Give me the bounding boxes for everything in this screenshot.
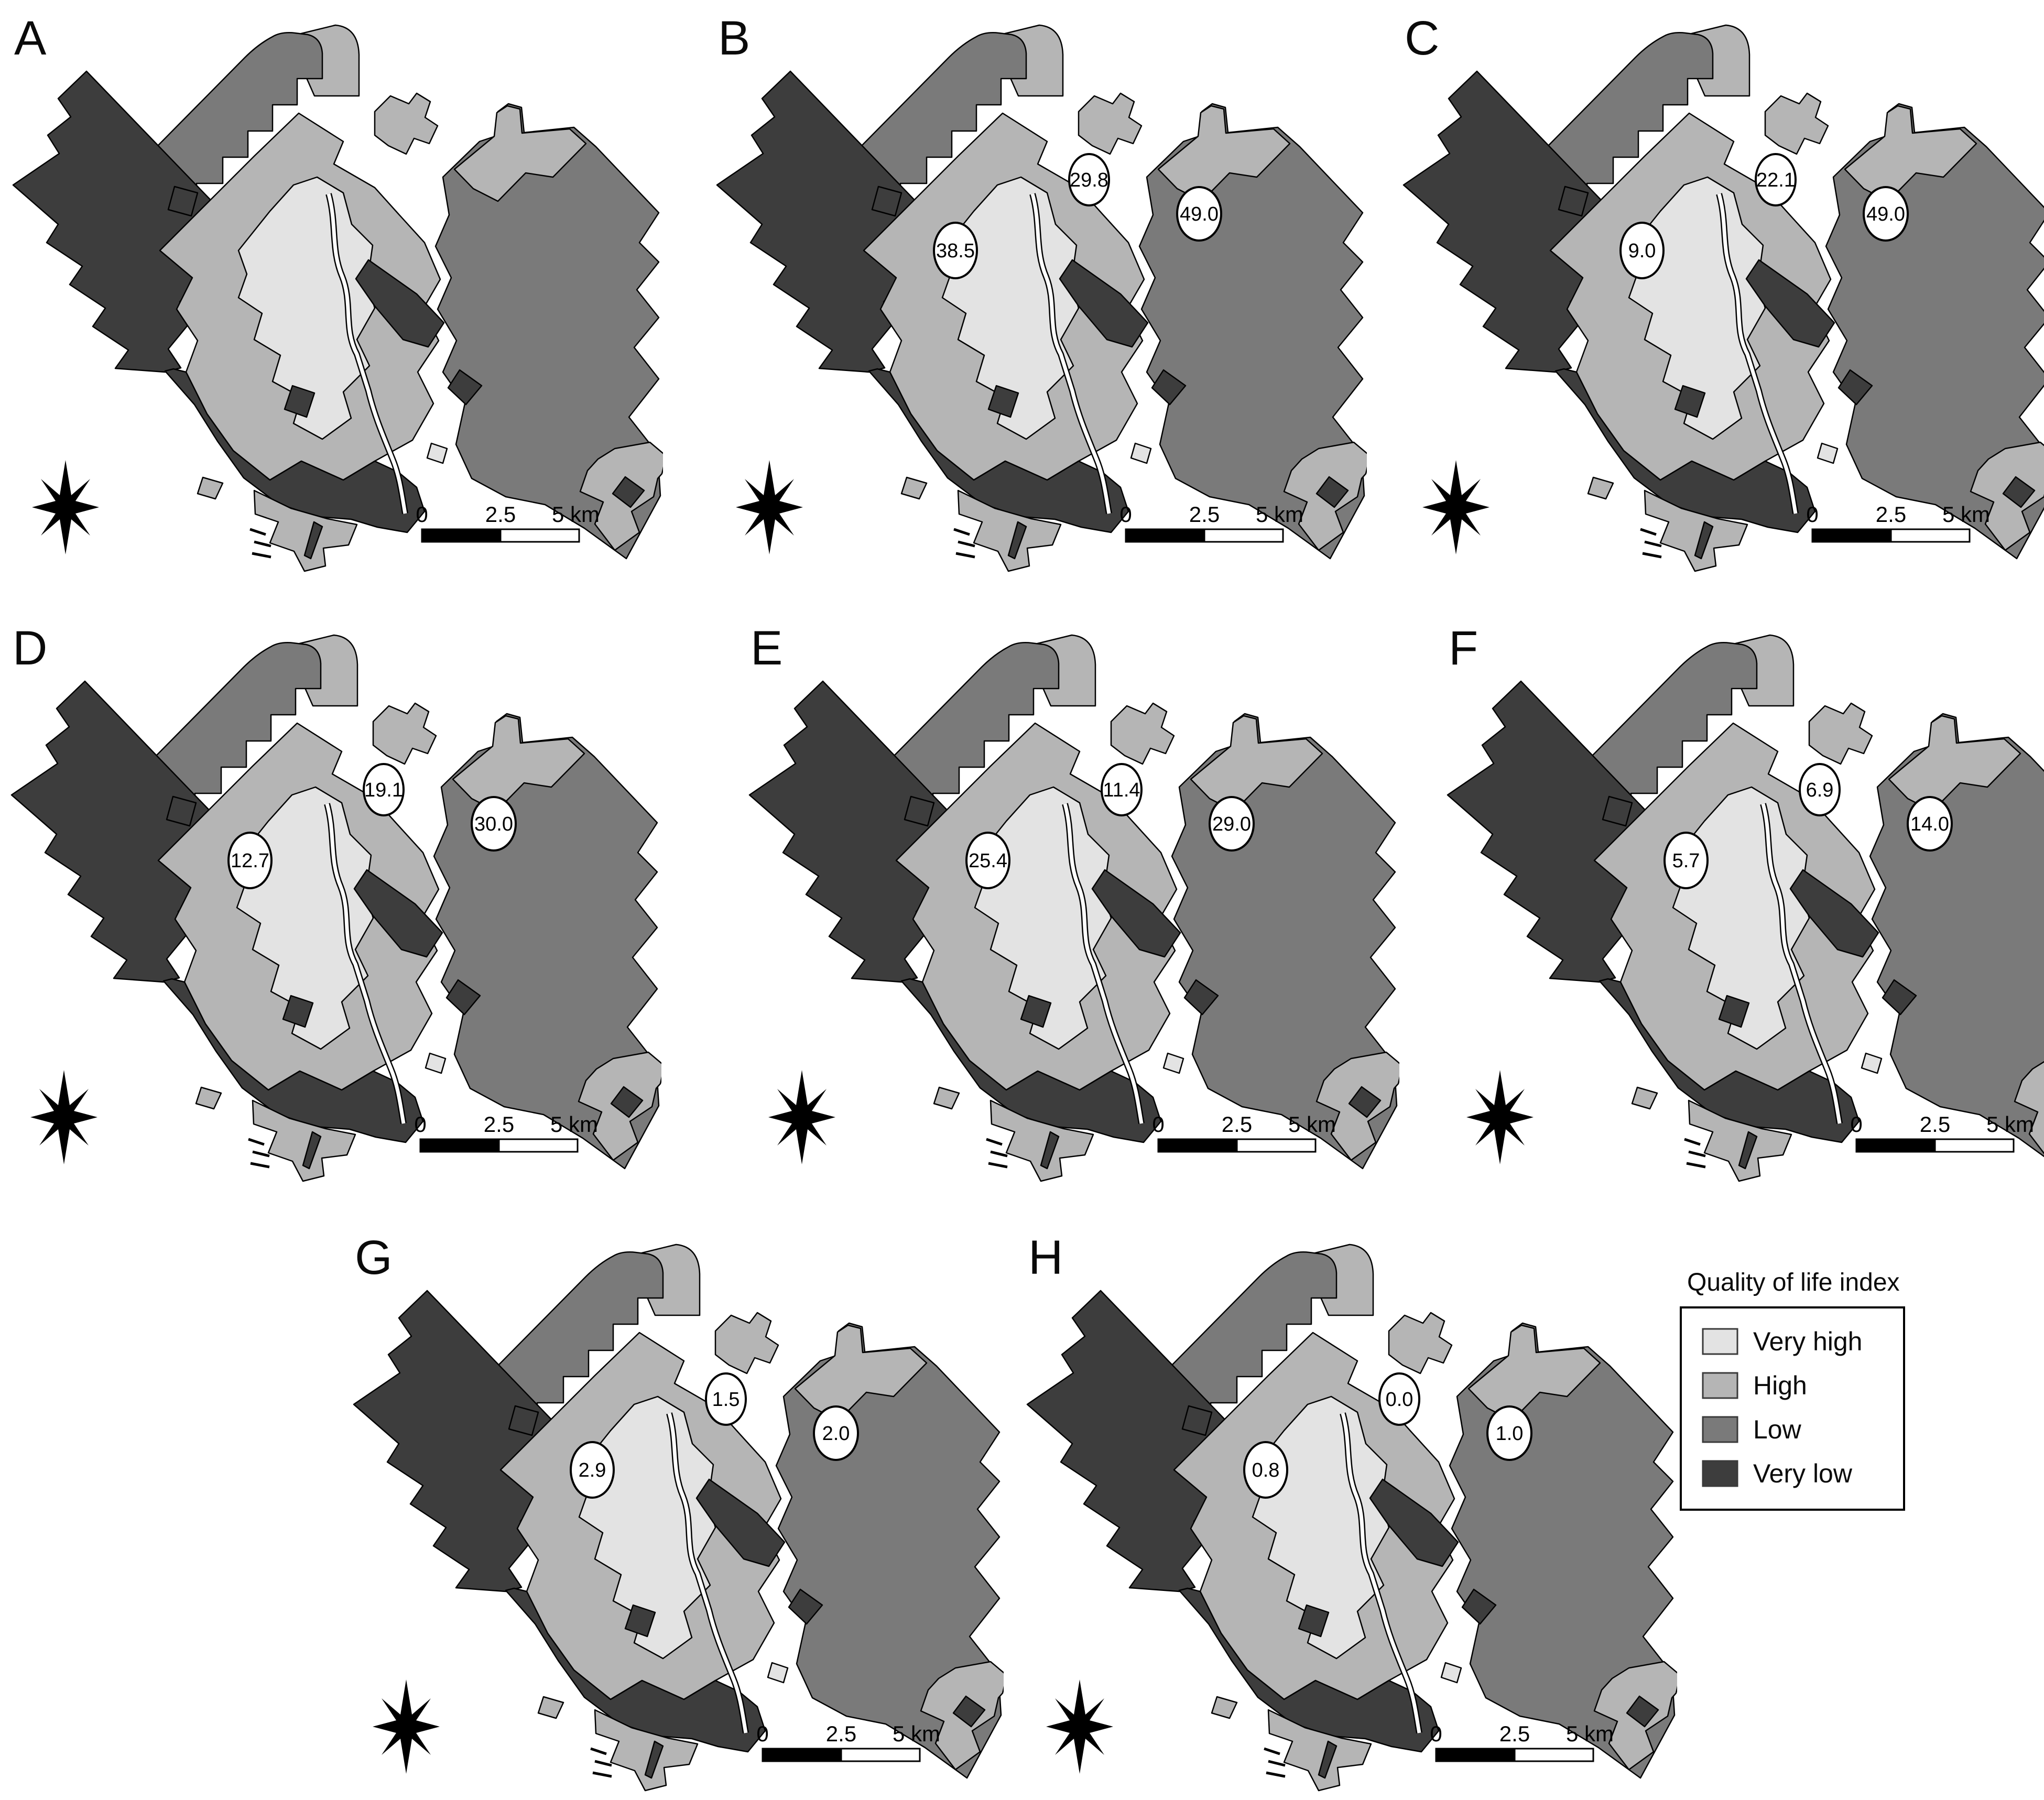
scale-bar: 0 2.5 5 km bbox=[1806, 502, 1990, 542]
scale-label-0: 0 bbox=[414, 1112, 426, 1137]
scale-label-0: 0 bbox=[1430, 1721, 1442, 1746]
value-text: 1.5 bbox=[712, 1389, 740, 1411]
panel-A: A 0 2.5 5 km bbox=[8, 4, 663, 581]
value-text: 2.9 bbox=[579, 1459, 606, 1481]
scale-bar-filled-half bbox=[763, 1749, 841, 1761]
value-text: 29.0 bbox=[1212, 813, 1251, 835]
scale-label-mid: 2.5 bbox=[1920, 1112, 1950, 1137]
city-map bbox=[749, 635, 1399, 1181]
legend-title: Quality of life index bbox=[1687, 1268, 1926, 1297]
value-badge-center: 25.4 bbox=[966, 833, 1009, 888]
panel-C: C 9.0 22.1 49.0 0 2.5 5 km bbox=[1398, 4, 2044, 581]
value-badge-northeast: 1.5 bbox=[706, 1373, 746, 1425]
value-badge-center: 12.7 bbox=[229, 833, 271, 888]
scale-label-0: 0 bbox=[1152, 1112, 1164, 1137]
scale-label-mid: 2.5 bbox=[484, 1112, 514, 1137]
panel-label: H bbox=[1028, 1231, 1063, 1284]
scale-label-0: 0 bbox=[1850, 1112, 1862, 1137]
value-badge-northeast: 0.0 bbox=[1379, 1373, 1419, 1425]
panel-G: G 2.9 1.5 2.0 0 2.5 5 km bbox=[349, 1224, 1004, 1800]
scale-bar: 0 2.5 5 km bbox=[1152, 1112, 1336, 1152]
legend-item-high: High bbox=[1701, 1370, 1889, 1401]
legend-item-very-low: Very low bbox=[1701, 1458, 1889, 1489]
scale-bar: 0 2.5 5 km bbox=[1430, 1721, 1614, 1761]
scale-bar: 0 2.5 5 km bbox=[1850, 1112, 2034, 1152]
panel-label: B bbox=[718, 12, 750, 65]
panel-E: E 25.4 11.4 29.0 0 2.5 5 k bbox=[744, 614, 1399, 1191]
scale-label-mid: 2.5 bbox=[1499, 1721, 1530, 1746]
city-map bbox=[12, 635, 661, 1181]
scale-bar-filled-half bbox=[1126, 529, 1204, 542]
panel-H: H 0.8 0.0 1.0 0 2.5 5 km bbox=[1022, 1224, 1677, 1800]
panel-label: F bbox=[1449, 621, 1478, 675]
scale-label-0: 0 bbox=[1806, 502, 1818, 527]
value-text: 25.4 bbox=[969, 850, 1007, 872]
legend-item-very-high: Very high bbox=[1701, 1326, 1889, 1357]
scale-label-end: 5 km bbox=[1942, 502, 1990, 527]
scale-label-mid: 2.5 bbox=[1222, 1112, 1252, 1137]
scale-bar-filled-half bbox=[1158, 1139, 1237, 1152]
value-badge-east: 49.0 bbox=[1864, 187, 1908, 241]
city-map bbox=[1404, 25, 2044, 571]
value-badge-center: 0.8 bbox=[1244, 1442, 1287, 1498]
scale-label-end: 5 km bbox=[893, 1721, 940, 1746]
scale-label-end: 5 km bbox=[552, 502, 600, 527]
compass-rose-icon bbox=[1422, 460, 1489, 554]
scale-label-mid: 2.5 bbox=[826, 1721, 856, 1746]
legend-label: Very high bbox=[1753, 1326, 1862, 1357]
scale-label-end: 5 km bbox=[1566, 1721, 1614, 1746]
value-badge-east: 1.0 bbox=[1487, 1406, 1531, 1460]
legend: Quality of life index Very high High Low bbox=[1680, 1268, 1926, 1511]
value-badge-northeast: 19.1 bbox=[364, 764, 404, 815]
panel-label: E bbox=[751, 621, 782, 675]
scale-bar: 0 2.5 5 km bbox=[414, 1112, 598, 1152]
scale-label-0: 0 bbox=[416, 502, 428, 527]
value-text: 9.0 bbox=[1628, 240, 1656, 262]
value-badge-center: 2.9 bbox=[571, 1442, 614, 1498]
value-badge-center: 5.7 bbox=[1665, 833, 1708, 888]
legend-swatch-very-low bbox=[1701, 1459, 1739, 1488]
legend-label: High bbox=[1753, 1370, 1807, 1401]
compass-rose-icon bbox=[1046, 1679, 1113, 1774]
value-badge-east: 30.0 bbox=[472, 797, 516, 850]
scale-label-end: 5 km bbox=[1256, 502, 1303, 527]
figure: A 0 2.5 5 km B 38.5 bbox=[0, 0, 2044, 1794]
value-text: 11.4 bbox=[1103, 779, 1140, 801]
scale-label-end: 5 km bbox=[550, 1112, 598, 1137]
scale-bar: 0 2.5 5 km bbox=[756, 1721, 940, 1761]
scale-bar-filled-half bbox=[422, 529, 501, 542]
value-text: 38.5 bbox=[936, 240, 975, 262]
scale-bar: 0 2.5 5 km bbox=[1119, 502, 1303, 542]
value-text: 0.0 bbox=[1386, 1389, 1414, 1411]
legend-item-low: Low bbox=[1701, 1414, 1889, 1445]
value-text: 5.7 bbox=[1672, 850, 1700, 872]
value-badge-center: 38.5 bbox=[934, 223, 977, 278]
panel-label: D bbox=[13, 621, 47, 675]
value-text: 0.8 bbox=[1252, 1459, 1280, 1481]
value-badge-east: 2.0 bbox=[814, 1406, 858, 1460]
panel-D: D 12.7 19.1 30.0 0 2.5 5 k bbox=[6, 614, 661, 1191]
city-map bbox=[1448, 635, 2044, 1181]
value-badge-center: 9.0 bbox=[1621, 223, 1664, 278]
value-text: 30.0 bbox=[474, 813, 513, 835]
compass-rose-icon bbox=[373, 1679, 440, 1774]
compass-rose-icon bbox=[768, 1070, 835, 1164]
panel-label: G bbox=[355, 1231, 393, 1284]
scale-label-mid: 2.5 bbox=[485, 502, 516, 527]
panel-label: C bbox=[1405, 12, 1439, 65]
value-text: 22.1 bbox=[1756, 169, 1795, 191]
city-map bbox=[717, 25, 1367, 571]
city-map bbox=[13, 25, 663, 571]
scale-bar-filled-half bbox=[1856, 1139, 1935, 1152]
city-map bbox=[1027, 1245, 1677, 1791]
scale-bar: 0 2.5 5 km bbox=[416, 502, 600, 542]
legend-box: Very high High Low Very low bbox=[1680, 1306, 1905, 1511]
value-badge-east: 29.0 bbox=[1210, 797, 1254, 850]
value-badge-northeast: 11.4 bbox=[1102, 764, 1141, 815]
compass-rose-icon bbox=[736, 460, 803, 554]
scale-label-end: 5 km bbox=[1288, 1112, 1336, 1137]
scale-label-0: 0 bbox=[756, 1721, 768, 1746]
legend-label: Very low bbox=[1753, 1458, 1852, 1489]
panel-B: B 38.5 29.8 49.0 0 2.5 5 k bbox=[712, 4, 1367, 581]
compass-rose-icon bbox=[30, 1070, 97, 1164]
panel-F: F 5.7 6.9 14.0 0 2.5 5 km bbox=[1442, 614, 2044, 1191]
scale-label-mid: 2.5 bbox=[1876, 502, 1906, 527]
value-badge-northeast: 6.9 bbox=[1800, 764, 1840, 815]
compass-rose-icon bbox=[32, 460, 99, 554]
value-badge-east: 14.0 bbox=[1908, 797, 1952, 850]
value-text: 29.8 bbox=[1070, 169, 1108, 191]
value-text: 49.0 bbox=[1866, 203, 1905, 225]
scale-bar-filled-half bbox=[1812, 529, 1891, 542]
scale-label-mid: 2.5 bbox=[1189, 502, 1220, 527]
value-text: 2.0 bbox=[822, 1423, 850, 1445]
value-badge-northeast: 29.8 bbox=[1069, 154, 1109, 205]
value-text: 1.0 bbox=[1496, 1423, 1524, 1445]
value-text: 19.1 bbox=[364, 779, 403, 801]
city-map bbox=[354, 1245, 1004, 1791]
scale-label-0: 0 bbox=[1119, 502, 1132, 527]
legend-swatch-high bbox=[1701, 1371, 1739, 1400]
scale-label-end: 5 km bbox=[1986, 1112, 2034, 1137]
value-text: 12.7 bbox=[231, 850, 269, 872]
scale-bar-filled-half bbox=[420, 1139, 499, 1152]
value-badge-northeast: 22.1 bbox=[1756, 154, 1796, 205]
value-text: 49.0 bbox=[1180, 203, 1219, 225]
value-text: 6.9 bbox=[1806, 779, 1834, 801]
legend-swatch-low bbox=[1701, 1415, 1739, 1444]
legend-swatch-very-high bbox=[1701, 1327, 1739, 1356]
value-badge-east: 49.0 bbox=[1177, 187, 1221, 241]
legend-label: Low bbox=[1753, 1414, 1801, 1445]
value-text: 14.0 bbox=[1910, 813, 1949, 835]
scale-bar-filled-half bbox=[1436, 1749, 1515, 1761]
panel-label: A bbox=[14, 12, 47, 65]
compass-rose-icon bbox=[1466, 1070, 1534, 1164]
